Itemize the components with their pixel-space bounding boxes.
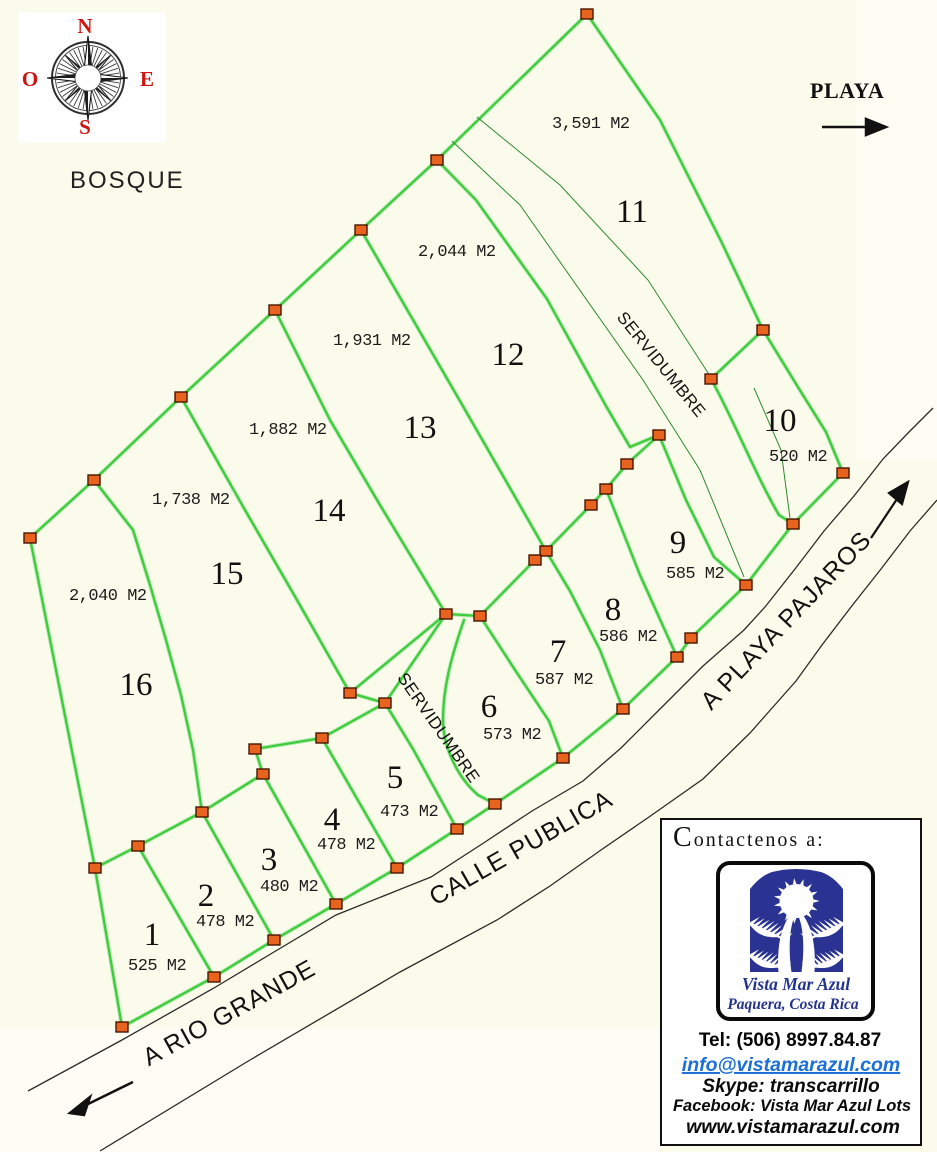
svg-text:3,591 M2: 3,591 M2 — [552, 115, 630, 134]
svg-text:473 M2: 473 M2 — [380, 803, 438, 822]
svg-text:478 M2: 478 M2 — [317, 836, 375, 855]
svg-text:15: 15 — [211, 556, 244, 592]
svg-text:478 M2: 478 M2 — [196, 913, 254, 932]
svg-text:5: 5 — [387, 760, 404, 796]
svg-text:7: 7 — [550, 634, 567, 670]
svg-text:587 M2: 587 M2 — [535, 671, 593, 690]
svg-text:586 M2: 586 M2 — [599, 628, 657, 647]
svg-text:Skype: transcarrillo: Skype: transcarrillo — [702, 1076, 879, 1097]
svg-text:13: 13 — [404, 410, 437, 446]
svg-text:www.vistamarazul.com: www.vistamarazul.com — [686, 1116, 900, 1138]
svg-text:BOSQUE: BOSQUE — [70, 167, 185, 194]
svg-text:Vista Mar Azul: Vista Mar Azul — [742, 974, 850, 994]
svg-text:9: 9 — [670, 525, 687, 561]
svg-text:S: S — [79, 115, 91, 139]
svg-text:2,044 M2: 2,044 M2 — [418, 243, 496, 262]
svg-text:585 M2: 585 M2 — [666, 565, 724, 584]
svg-text:520 M2: 520 M2 — [769, 448, 827, 467]
svg-text:12: 12 — [492, 337, 525, 373]
svg-text:4: 4 — [324, 802, 341, 838]
svg-text:1: 1 — [144, 917, 161, 953]
svg-text:10: 10 — [764, 403, 797, 439]
svg-text:480 M2: 480 M2 — [260, 878, 318, 897]
svg-text:1,882 M2: 1,882 M2 — [249, 421, 327, 440]
svg-text:1,931 M2: 1,931 M2 — [333, 332, 411, 351]
svg-text:525 M2: 525 M2 — [128, 957, 186, 976]
svg-text:1,738 M2: 1,738 M2 — [152, 491, 230, 510]
svg-text:N: N — [77, 14, 92, 38]
svg-text:O: O — [22, 67, 38, 91]
svg-text:2,040 M2: 2,040 M2 — [69, 587, 147, 606]
svg-text:11: 11 — [616, 194, 648, 230]
svg-text:573 M2: 573 M2 — [483, 726, 541, 745]
svg-text:Paquera, Costa Rica: Paquera, Costa Rica — [727, 996, 859, 1013]
svg-text:E: E — [140, 67, 154, 91]
svg-text:Tel: (506) 8997.84.87: Tel: (506) 8997.84.87 — [699, 1030, 881, 1051]
svg-text:14: 14 — [313, 493, 346, 529]
svg-text:3: 3 — [261, 842, 278, 878]
svg-text:2: 2 — [198, 878, 215, 914]
svg-text:info@vistamarazul.com: info@vistamarazul.com — [682, 1054, 900, 1076]
svg-text:6: 6 — [481, 689, 498, 725]
svg-text:Facebook: Vista Mar Azul Lots: Facebook: Vista Mar Azul Lots — [673, 1097, 911, 1115]
svg-text:8: 8 — [605, 592, 622, 628]
svg-text:16: 16 — [120, 667, 153, 703]
svg-text:PLAYA: PLAYA — [810, 78, 884, 103]
